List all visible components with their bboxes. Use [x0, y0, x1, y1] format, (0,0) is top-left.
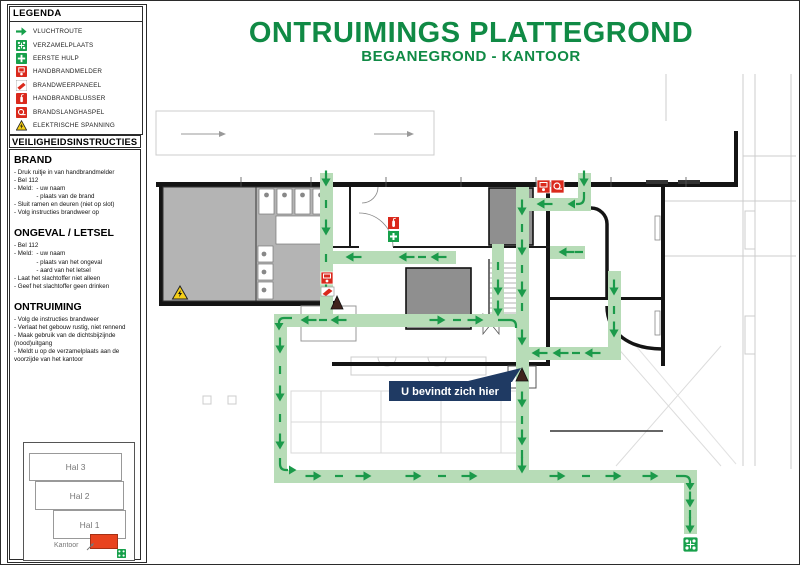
instruction-line: - plaats van het ongeval	[14, 259, 137, 267]
instruction-line: - Sluit ramen en deuren (niet op slot)	[14, 201, 137, 209]
instruction-line: - Geef het slachtoffer geen drinken	[14, 283, 137, 291]
floor-plan: U bevindt zich hier	[146, 66, 800, 565]
vluchtroute-icon	[16, 26, 27, 37]
brandweerpaneel-icon	[16, 80, 27, 91]
legend-label: BRANDWEERPANEEL	[33, 82, 101, 89]
verzamelplaats-icon	[16, 40, 27, 51]
instruction-line: - Volg instructies brandweer op	[14, 209, 137, 217]
legend: LEGENDA VLUCHTROUTE VERZAMELPLAATS EERST…	[9, 6, 143, 135]
evacuation-routes	[274, 173, 697, 534]
safety-instructions: BRAND - Druk ruitje in van handbrandmeld…	[9, 149, 141, 560]
instructions-section-brand: BRAND - Druk ruitje in van handbrandmeld…	[14, 154, 137, 217]
instructions-section-ontruiming: ONTRUIMING - Volg de instructies brandwe…	[14, 301, 137, 364]
brandslanghaspel-icon	[551, 180, 564, 193]
instruction-line: - aard van het letsel	[14, 267, 137, 275]
left-panel: LEGENDA VLUCHTROUTE VERZAMELPLAATS EERST…	[7, 4, 147, 563]
legend-item: BRANDWEERPANEEL	[16, 79, 140, 92]
evacuation-plan-page: LEGENDA VLUCHTROUTE VERZAMELPLAATS EERST…	[0, 0, 800, 565]
legend-item: VLUCHTROUTE	[16, 25, 140, 38]
handbrandmelder-icon	[537, 180, 550, 193]
legend-items: VLUCHTROUTE VERZAMELPLAATS EERSTE HULP H…	[10, 22, 142, 132]
you-are-here-label: U bevindt zich hier	[401, 386, 500, 398]
instruction-line: - plaats van de brand	[14, 193, 137, 201]
instructions-section-ongeval: ONGEVAL / LETSEL - Bel 112 - Meld: - uw …	[14, 227, 137, 290]
legend-label: VLUCHTROUTE	[33, 28, 82, 35]
handbrandmelder-icon	[321, 272, 333, 284]
legend-label: HANDBRANDMELDER	[33, 68, 102, 75]
minimap-pointer-arrow-icon	[86, 541, 96, 551]
legend-label: EERSTE HULP	[33, 55, 79, 62]
instruction-line: - Bel 112	[14, 177, 137, 185]
elektrische-spanning-icon	[16, 120, 27, 131]
instruction-line: - Bel 112	[14, 242, 137, 250]
safety-instructions-header: VEILIGHEIDSINSTRUCTIES	[9, 135, 141, 148]
section-title: ONTRUIMING	[14, 301, 137, 313]
handbrandblusser-icon	[16, 93, 27, 104]
instruction-line: - Meld: - uw naam	[14, 185, 137, 193]
brandslanghaspel-icon	[16, 107, 27, 118]
handbrandblusser-icon	[388, 217, 399, 229]
page-subtitle: BEGANEGROND - KANTOOR	[151, 48, 791, 65]
legend-label: BRANDSLANGHASPEL	[33, 109, 104, 116]
instruction-line: - Laat het slachtoffer niet alleen	[14, 275, 137, 283]
minimap-hal-3: Hal 3	[29, 453, 122, 481]
legend-item: BRANDSLANGHASPEL	[16, 105, 140, 118]
section-title: BRAND	[14, 154, 137, 166]
legend-item: ELEKTRISCHE SPANNING	[16, 119, 140, 132]
legend-item: EERSTE HULP	[16, 52, 140, 65]
legend-item: HANDBRANDMELDER	[16, 65, 140, 78]
hall-label: Hal 1	[80, 520, 100, 530]
you-are-here-callout: U bevindt zich hier	[389, 368, 521, 401]
handbrandmelder-icon	[16, 66, 27, 77]
minimap-verzamelplaats-icon	[117, 549, 126, 558]
instruction-line: - Meld: - uw naam	[14, 250, 137, 258]
legend-label: ELEKTRISCHE SPANNING	[33, 122, 115, 129]
minimap-hal-2: Hal 2	[35, 481, 124, 510]
instruction-line: - Verlaat het gebouw rustig, niet rennen…	[14, 324, 137, 332]
instruction-line: - Maak gebruik van de dichtsbijzijnde (n…	[14, 332, 137, 348]
instruction-line: - Volg de instructies brandweer	[14, 316, 137, 324]
site-overview-map: Hal 3 Hal 2 Hal 1 Kantoor	[23, 442, 135, 561]
hall-label: Hal 3	[66, 462, 86, 472]
legend-header: LEGENDA	[10, 7, 142, 22]
hall-label: Hal 2	[70, 491, 90, 501]
legend-item: VERZAMELPLAATS	[16, 38, 140, 51]
instruction-line: - Meldt u op de verzamelplaats aan de vo…	[14, 348, 137, 364]
instruction-line: - Druk ruitje in van handbrandmelder	[14, 169, 137, 177]
eerste-hulp-icon	[16, 53, 27, 64]
brandweerpaneel-icon	[321, 287, 334, 296]
legend-label: VERZAMELPLAATS	[33, 42, 93, 49]
verzamelplaats-icon	[683, 537, 698, 552]
minimap-kantoor-label: Kantoor	[54, 542, 79, 549]
legend-item: HANDBRANDBLUSSER	[16, 92, 140, 105]
section-title: ONGEVAL / LETSEL	[14, 227, 137, 239]
legend-label: HANDBRANDBLUSSER	[33, 95, 105, 102]
eerste-hulp-icon	[388, 231, 399, 242]
page-title: ONTRUIMINGS PLATTEGROND	[151, 17, 791, 50]
